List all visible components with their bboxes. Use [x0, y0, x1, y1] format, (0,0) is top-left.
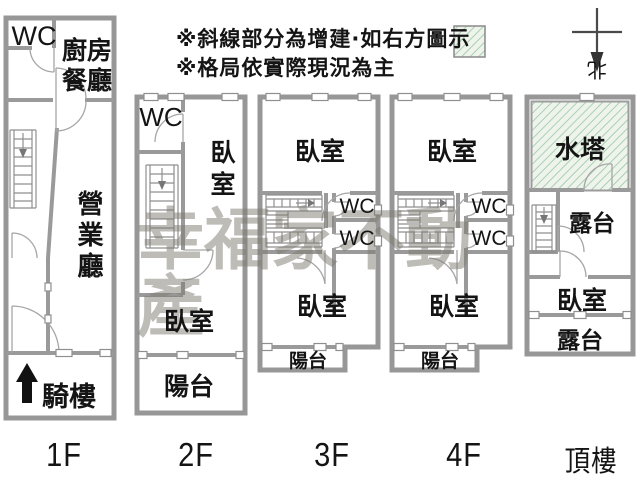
legend-line-1: ※斜線部分為增建·如右方圖示 — [176, 23, 470, 53]
entrance-arrow-icon — [16, 363, 38, 403]
floor-label-roof: 頂樓 — [557, 438, 626, 480]
room-label-roof-terrace-lower: 露台 — [549, 321, 611, 355]
floor-label-2f: 2F — [173, 436, 219, 474]
room-label-3f-balcony: 陽台 — [280, 346, 336, 373]
room-label-2f-wc: WC — [137, 102, 185, 133]
floorplan-image: .wo{fill:none;stroke:#979797;stroke-widt… — [0, 0, 640, 480]
room-label-4f-balcony: 陽台 — [412, 346, 468, 373]
room-label-roof-water-tower: 水塔 — [549, 130, 611, 166]
room-label-3f-bedroom-upper: 臥室 — [288, 132, 352, 168]
room-label-3f-bedroom-lower: 臥室 — [290, 287, 354, 323]
room-label-roof-terrace-upper: 露台 — [564, 204, 620, 238]
room-label-3f-wc-lower: WC — [336, 227, 378, 251]
floor-label-4f: 4F — [441, 436, 487, 474]
room-label-1f-arcade: 騎樓 — [38, 375, 100, 414]
room-label-1f-kitchen-line2: 餐廳 — [60, 61, 114, 97]
room-label-1f-wc: WC — [11, 21, 57, 52]
room-label-4f-bedroom-upper: 臥室 — [420, 132, 484, 168]
north-label: 北 — [584, 57, 610, 86]
legend-line-2: ※格局依實際現況為主 — [176, 52, 395, 82]
room-label-roof-bedroom: 臥室 — [551, 281, 613, 317]
room-label-4f-wc-lower: WC — [468, 227, 510, 251]
room-label-3f-wc-upper: WC — [336, 195, 378, 219]
room-label-1f-business-hall: 營業廳 — [70, 190, 107, 290]
room-label-2f-balcony: 陽台 — [157, 367, 221, 403]
floor-label-3f: 3F — [309, 436, 355, 474]
room-label-4f-bedroom-lower: 臥室 — [422, 287, 486, 323]
room-label-2f-bedroom-upper: 臥室 — [203, 139, 239, 211]
room-label-4f-wc-upper: WC — [468, 195, 510, 219]
floor-label-1f: 1F — [41, 436, 87, 474]
room-label-2f-bedroom-lower: 臥室 — [157, 302, 221, 338]
